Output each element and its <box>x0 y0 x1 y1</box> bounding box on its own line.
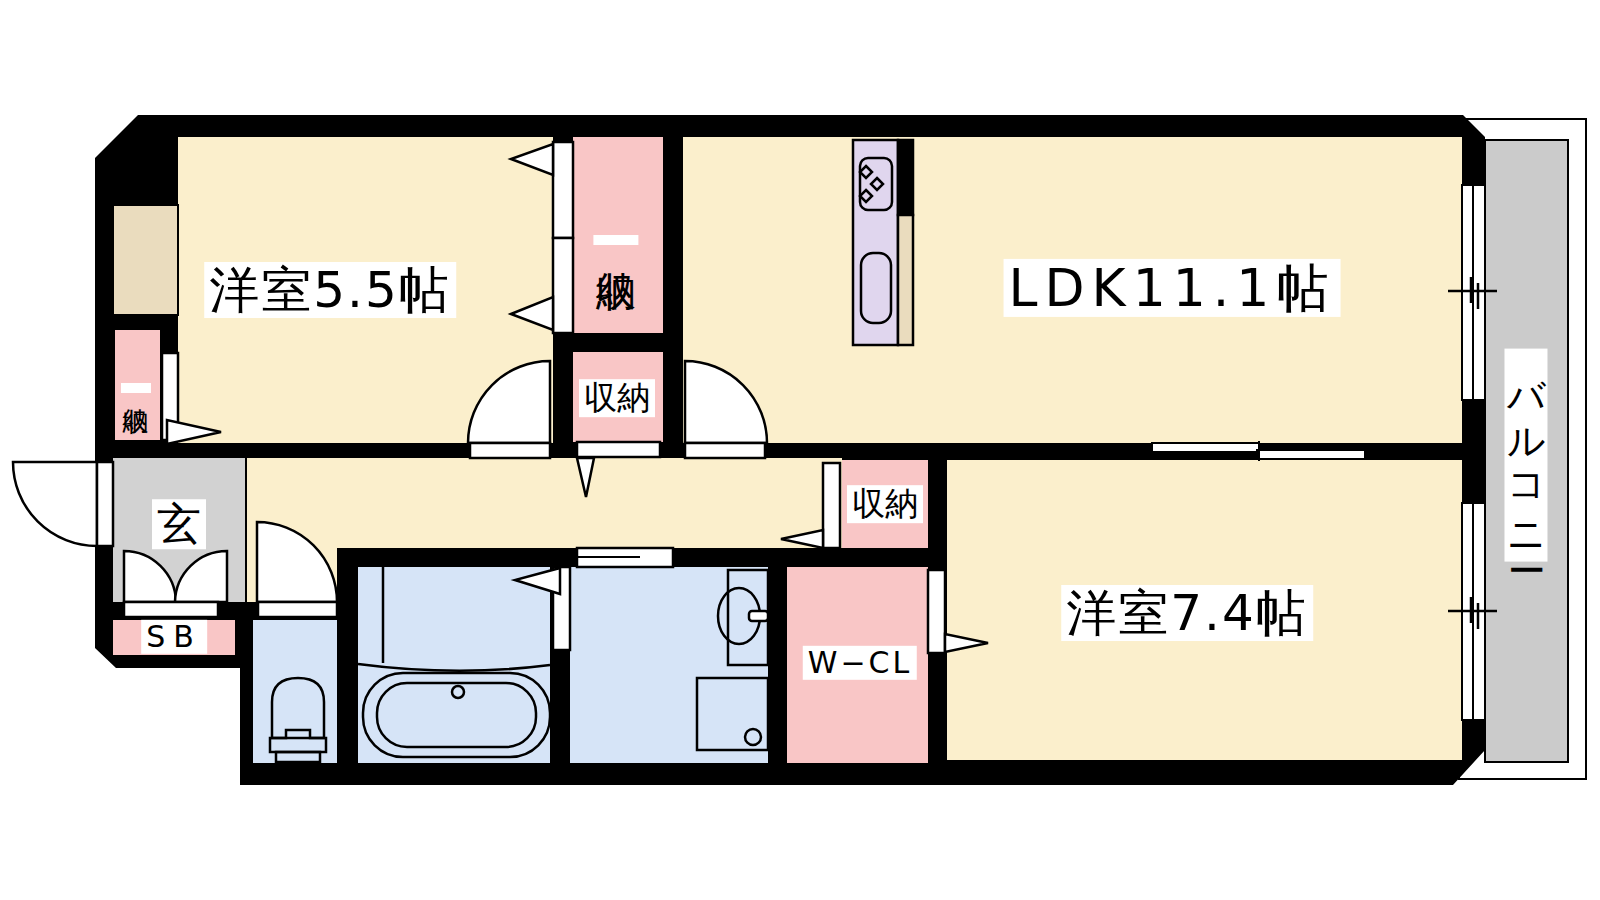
label-closet-bedroom-wall: 収納 <box>121 383 151 393</box>
label-closet-tall: 収納 <box>593 235 638 245</box>
floor-plan: 洋室5.5帖 LDK11.1帖 洋室7.4帖 バルコニー 収納 収納 収納 収納… <box>0 0 1600 900</box>
kitchen-wall-stub <box>898 140 913 215</box>
label-shoe-box: SB <box>141 620 207 654</box>
hallway <box>247 458 842 548</box>
label-ldk: LDK11.1帖 <box>1004 259 1341 317</box>
label-walk-in-closet: W−CL <box>803 646 917 680</box>
bathroom <box>358 567 550 763</box>
label-western-5-5: 洋室5.5帖 <box>204 262 456 318</box>
kitchen-counter <box>853 140 913 345</box>
label-closet-bedroom2: 収納 <box>847 485 923 523</box>
front-door <box>13 462 113 546</box>
pipe-space <box>113 205 178 315</box>
label-western-7-4: 洋室7.4帖 <box>1061 585 1313 641</box>
label-entrance: 玄 <box>152 499 206 549</box>
toilet-room <box>253 620 337 763</box>
window-ldk-balcony <box>1462 185 1485 400</box>
label-balcony: バルコニー <box>1504 349 1547 562</box>
counter-edge <box>898 215 913 345</box>
label-closet-hall: 収納 <box>579 379 655 417</box>
floor-plan-canvas <box>0 0 1600 900</box>
